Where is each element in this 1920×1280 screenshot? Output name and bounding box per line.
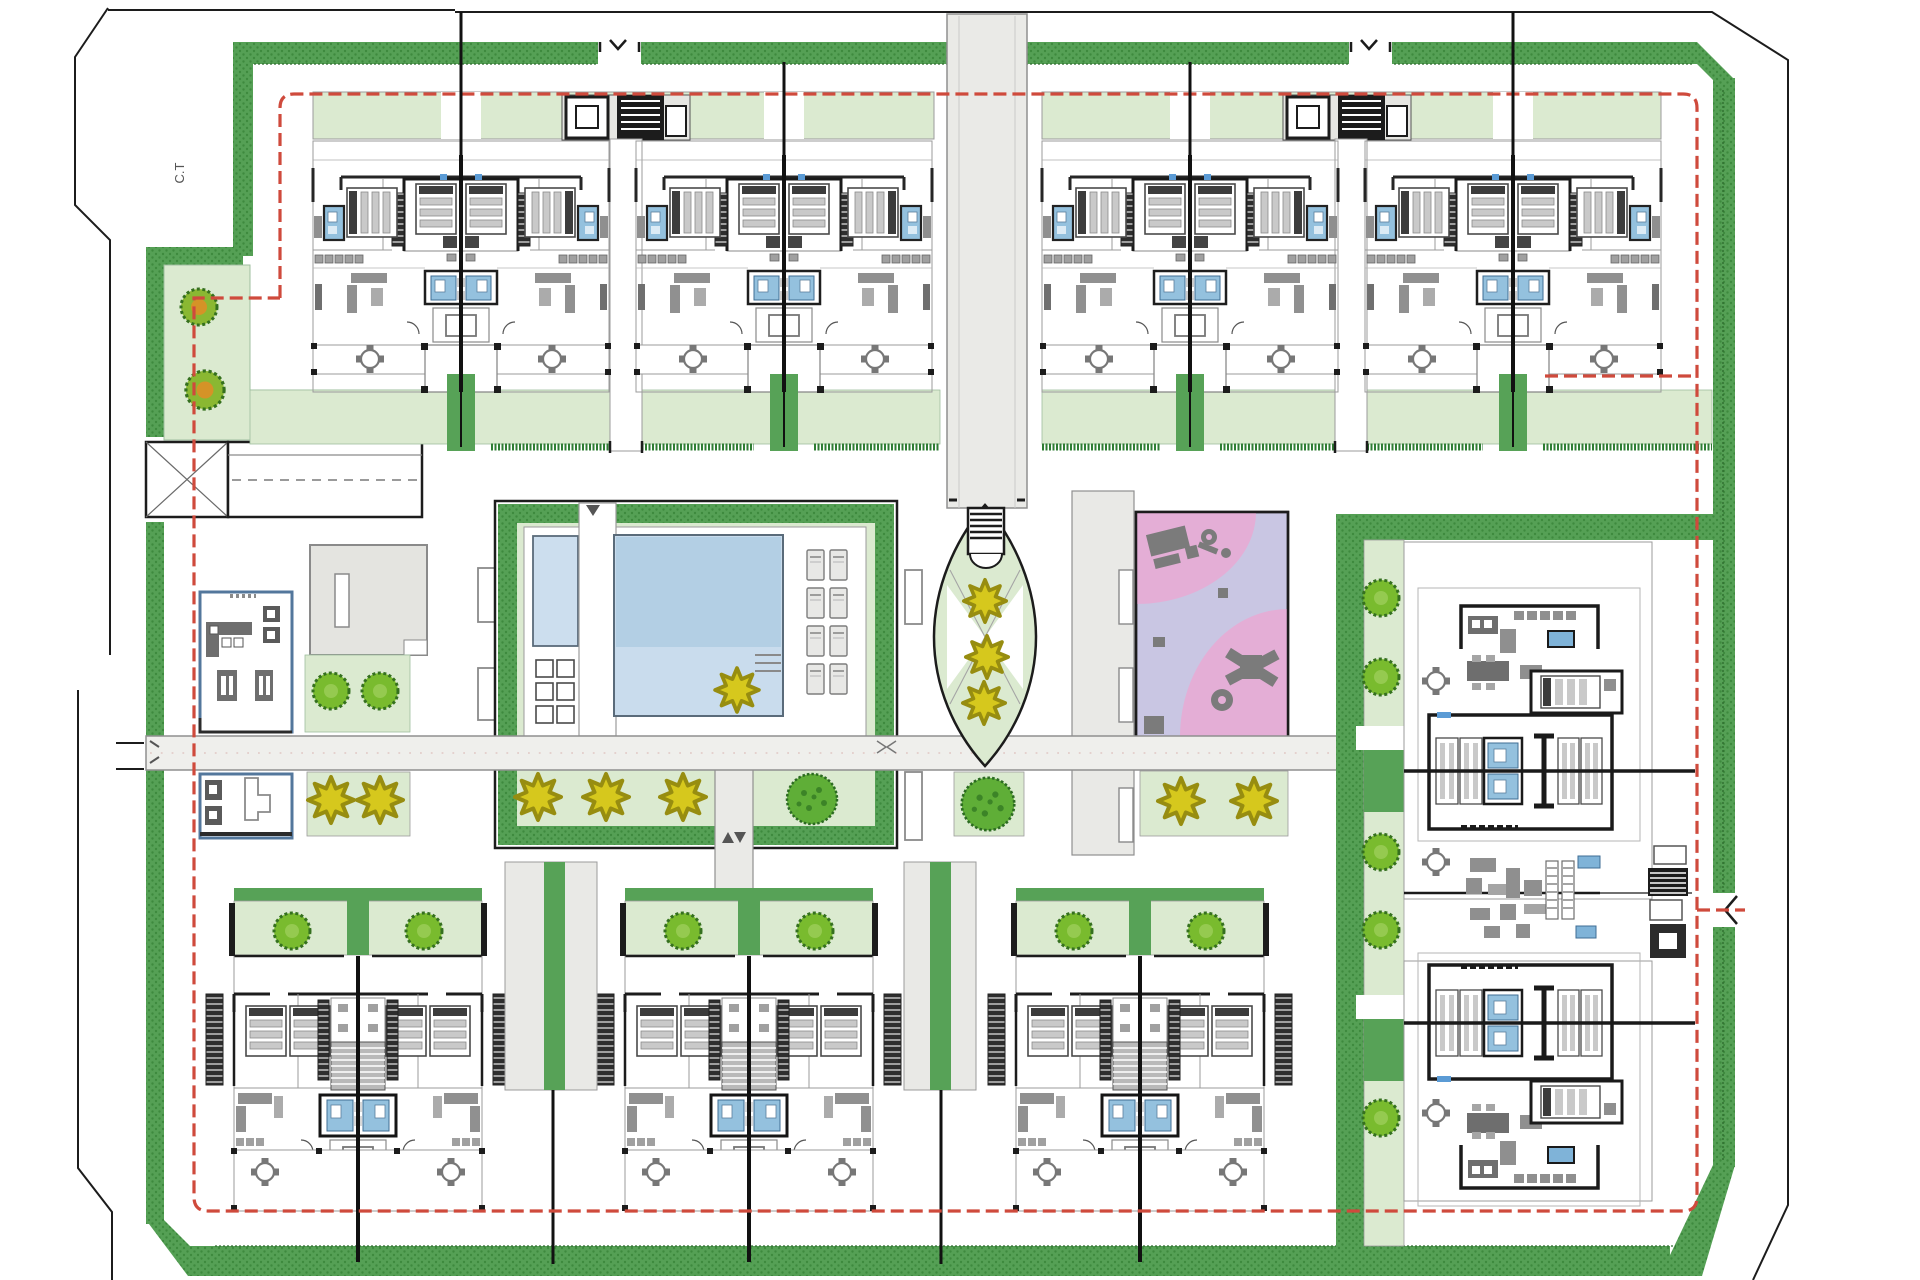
svg-text:C.T: C.T: [172, 162, 187, 183]
